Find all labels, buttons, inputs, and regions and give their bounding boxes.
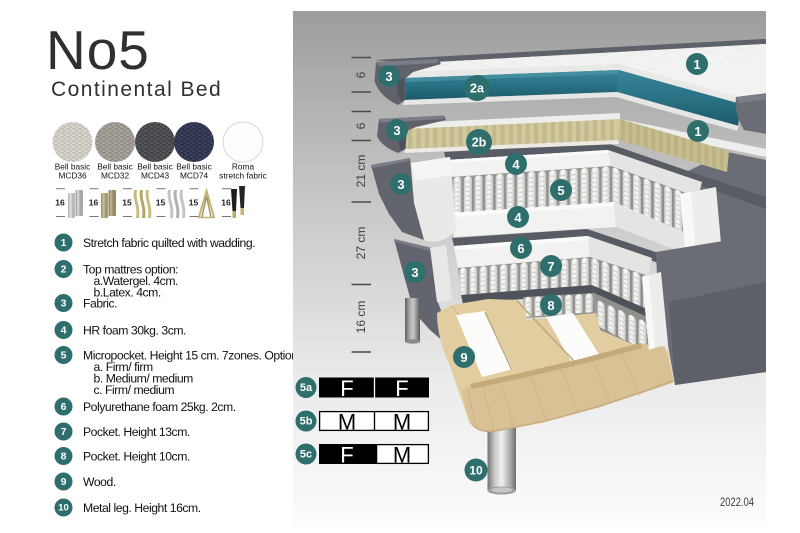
svg-text:Pocket. Height 13cm.: Pocket. Height 13cm. (83, 425, 190, 439)
svg-text:Metal leg. Height 16cm.: Metal leg. Height 16cm. (83, 501, 201, 515)
svg-text:6: 6 (517, 241, 524, 256)
svg-text:7: 7 (547, 259, 554, 274)
svg-text:16: 16 (221, 198, 231, 208)
svg-text:21 cm: 21 cm (354, 155, 368, 188)
svg-text:16: 16 (89, 198, 99, 208)
svg-text:Wood.: Wood. (83, 475, 116, 489)
svg-text:3: 3 (397, 177, 404, 192)
svg-text:4: 4 (512, 157, 520, 172)
svg-text:5: 5 (557, 183, 564, 198)
svg-text:6: 6 (61, 401, 67, 413)
svg-text:8: 8 (61, 451, 67, 463)
svg-text:1: 1 (694, 124, 701, 139)
svg-text:4: 4 (61, 325, 67, 337)
svg-text:MCD43: MCD43 (141, 171, 170, 181)
svg-text:7: 7 (61, 426, 67, 438)
svg-text:HR foam 30kg. 3cm.: HR foam 30kg. 3cm. (83, 324, 186, 338)
svg-text:MCD32: MCD32 (101, 171, 130, 181)
svg-text:10: 10 (469, 464, 483, 478)
svg-text:M: M (338, 410, 356, 435)
svg-text:M: M (393, 443, 411, 468)
svg-text:1: 1 (61, 237, 67, 249)
svg-text:M: M (393, 410, 411, 435)
svg-text:stretch fabric: stretch fabric (219, 171, 267, 181)
svg-text:Stretch fabric quilted with wa: Stretch fabric quilted with wadding. (83, 236, 255, 250)
svg-text:8: 8 (547, 298, 554, 313)
svg-text:MCD36: MCD36 (58, 171, 87, 181)
svg-text:c. Firm/ medium: c. Firm/ medium (94, 383, 175, 397)
svg-text:2b: 2b (472, 136, 487, 150)
svg-text:2a: 2a (470, 82, 485, 96)
svg-text:4: 4 (514, 210, 522, 225)
svg-text:3: 3 (385, 69, 392, 84)
svg-text:16 cm: 16 cm (354, 301, 368, 334)
svg-text:9: 9 (61, 476, 67, 488)
svg-text:Polyurethane foam 25kg. 2cm.: Polyurethane foam 25kg. 2cm. (83, 400, 236, 414)
svg-text:5a: 5a (300, 382, 313, 394)
svg-text:1: 1 (693, 57, 700, 72)
svg-text:10: 10 (58, 503, 69, 514)
svg-text:F: F (340, 443, 353, 468)
svg-text:Fabric.: Fabric. (83, 297, 117, 311)
svg-text:6: 6 (354, 122, 368, 129)
svg-text:9: 9 (460, 350, 467, 365)
svg-text:3: 3 (393, 123, 400, 138)
svg-text:MCD74: MCD74 (180, 171, 209, 181)
svg-text:3: 3 (61, 298, 67, 310)
svg-text:5c: 5c (300, 449, 312, 461)
svg-text:F: F (395, 376, 408, 401)
svg-text:27 cm: 27 cm (354, 227, 368, 260)
svg-text:15: 15 (189, 198, 199, 208)
svg-text:3: 3 (411, 265, 418, 280)
svg-text:6: 6 (354, 71, 368, 78)
svg-text:5b: 5b (300, 416, 313, 428)
svg-text:15: 15 (156, 198, 166, 208)
svg-text:15: 15 (122, 198, 132, 208)
svg-text:2022.04: 2022.04 (720, 495, 754, 509)
svg-text:2: 2 (61, 264, 67, 276)
svg-text:F: F (340, 376, 353, 401)
svg-text:Pocket. Height 10cm.: Pocket. Height 10cm. (83, 450, 190, 464)
svg-text:16: 16 (55, 198, 65, 208)
svg-text:5: 5 (61, 350, 67, 362)
